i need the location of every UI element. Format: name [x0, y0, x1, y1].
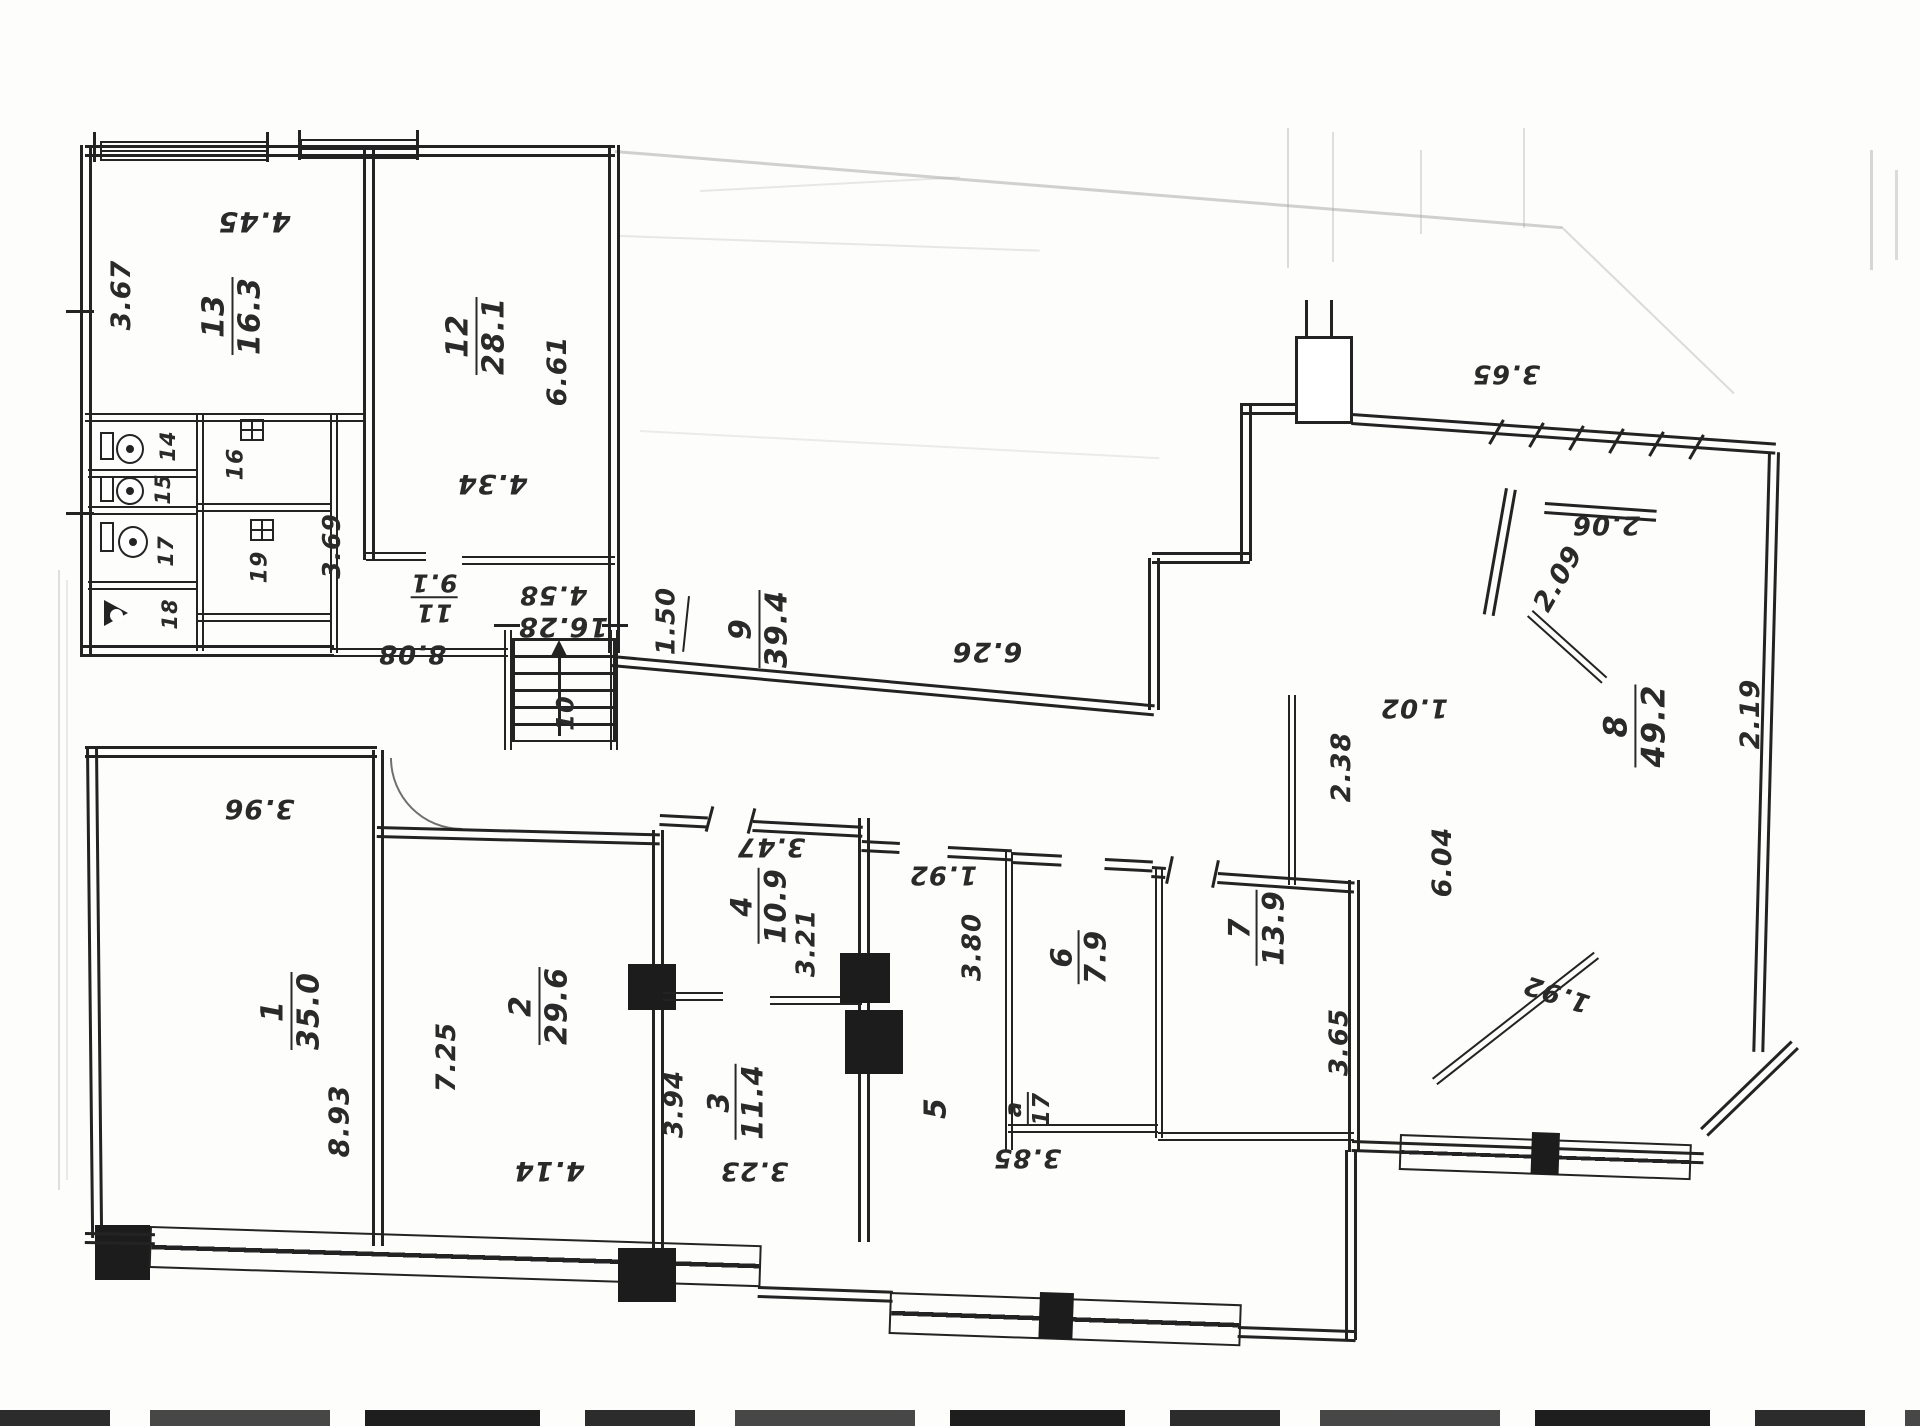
room-label-14: 14 [157, 430, 179, 461]
door-tick [1165, 856, 1174, 884]
wall-wing-right-outer [1752, 452, 1780, 1052]
room-label-7: 713.9 [1225, 890, 1290, 966]
room-label-12: 1228.1 [443, 297, 510, 375]
wall-wing-left-upper [1148, 558, 1160, 710]
scan-artifact-line [700, 176, 960, 192]
scan-artifact-line [58, 570, 60, 1190]
scan-artifact-line [1287, 128, 1289, 268]
dim-3-47: 3.47 [737, 832, 805, 859]
room-label-a-17: а17 [1002, 1092, 1054, 1126]
pillar [628, 964, 676, 1010]
wall-bottom-jog [1345, 1150, 1357, 1340]
wall-wing-top [1351, 413, 1776, 455]
dim-1-92-rooms: 1.92 [909, 860, 977, 887]
dim-16-28: 16.28 [518, 612, 608, 640]
pillar [1038, 1292, 1074, 1339]
dim-1-02: 1.02 [1380, 693, 1448, 720]
room-label-8: 849.2 [1599, 685, 1670, 768]
stairs-label-10: 10 [553, 695, 578, 730]
wall-room2-top [377, 826, 660, 845]
scan-artifact-line [640, 430, 1159, 459]
dim-3-21: 3.21 [793, 909, 820, 977]
wall-room12-bottom [462, 556, 615, 565]
dimension-tick [1330, 300, 1333, 336]
window-top-1 [100, 141, 268, 161]
wall-room4-room3 [663, 992, 723, 1001]
toilet-drain-icon [129, 538, 137, 546]
sink-icon [250, 519, 274, 541]
dim-3-23: 3.23 [720, 1156, 788, 1183]
dim-1-50: 1.50 [653, 587, 680, 655]
dimension-tick [66, 310, 94, 313]
dimension-line [682, 596, 690, 652]
dim-4-34: 4.34 [457, 469, 528, 497]
wall-room6-top [1011, 852, 1062, 867]
wall-stairwell-left [504, 630, 512, 750]
wall-entry-notch-diagonal [1527, 610, 1607, 684]
toilet-tank-icon [100, 432, 114, 460]
wall-wc16-19 [198, 503, 332, 512]
room-label-6: 67.9 [1047, 930, 1112, 984]
wall-room8-inner-diagonal [1432, 952, 1599, 1085]
wall-wc-block-top [85, 413, 366, 422]
dim-2-38: 2.38 [1328, 732, 1356, 803]
dim-6-61: 6.61 [544, 336, 572, 407]
dim-3-85: 3.85 [993, 1143, 1061, 1170]
wall-room4-top [659, 814, 708, 828]
dim-3-96: 3.96 [224, 794, 295, 822]
wall-wing-corner-diagonal [1700, 1040, 1799, 1136]
scan-artifact-line [66, 580, 68, 1180]
wall-room7-bottom [1158, 1132, 1354, 1141]
pillar [618, 1248, 676, 1302]
wall-left-outer [80, 145, 92, 655]
room-label-1: 135.0 [258, 972, 325, 1050]
wall-right-wing [608, 145, 620, 653]
dimension-tick [266, 132, 269, 162]
stairs-arrow-up-icon [551, 640, 567, 656]
room-label-16: 16 [224, 448, 247, 481]
urinal-drain-icon [110, 609, 123, 622]
wall-room8-arm-left [1288, 695, 1296, 885]
wall-bottom-outer [758, 1286, 893, 1303]
wall-wc-block-bottom [80, 645, 334, 657]
toilet-drain-icon [126, 445, 134, 453]
dim-7-25: 7.25 [433, 1022, 461, 1093]
wall-room12-bottom [366, 552, 426, 561]
dim-3-69: 3.69 [319, 513, 345, 579]
wall-shaft-link [1240, 403, 1302, 415]
wall-room6-room7 [1155, 868, 1163, 1138]
room-label-18: 18 [159, 598, 181, 629]
wall-room6-top [1104, 858, 1153, 872]
wall-room2-room3 [652, 830, 664, 1258]
floor-plan: 1316.33.674.451228.16.614.343.6914151617… [0, 0, 1920, 1426]
dimension-tick [1305, 300, 1308, 336]
dimension-tick [494, 624, 520, 627]
toilet-tank-icon [100, 476, 114, 502]
room-label-9: 939.4 [726, 590, 793, 668]
room-label-13: 1316.3 [199, 277, 266, 355]
dim-2-19: 2.19 [1737, 679, 1765, 750]
shaft-box [1295, 336, 1353, 424]
dim-4-45: 4.45 [217, 207, 290, 236]
wall-bottom-outer [85, 1232, 155, 1245]
room-label-15: 15 [152, 473, 174, 504]
room-label-5: 5 [920, 1097, 952, 1119]
wall-wing-left-riser [1240, 403, 1252, 561]
dimension-tick [416, 130, 419, 160]
wall-corridor9-top [611, 655, 1155, 716]
pillar [845, 1010, 903, 1074]
sink-icon [240, 419, 264, 441]
toilet-tank-icon [100, 522, 114, 552]
dim-6-04: 6.04 [1429, 827, 1457, 898]
wall-wc15-17 [88, 506, 198, 515]
dim-8-08: 8.08 [378, 639, 446, 666]
pillar [840, 953, 890, 1003]
dim-3-67: 3.67 [108, 260, 136, 331]
dim-2-06: 2.06 [1572, 510, 1640, 537]
dimension-tick [298, 130, 301, 160]
toilet-drain-icon [126, 487, 134, 495]
scan-artifact-line [1420, 150, 1422, 234]
scan-artifact-line [1870, 150, 1873, 270]
window-top-2 [300, 139, 418, 159]
wall-wc19-bottom [198, 613, 332, 622]
dimension-tick [93, 132, 96, 162]
wall-wing-notch-top [1152, 552, 1250, 564]
dim-3-94: 3.94 [661, 1070, 688, 1138]
wall-room13-room12 [363, 150, 375, 560]
dim-8-93: 8.93 [324, 1084, 353, 1157]
wall-bottom-outer [1238, 1326, 1356, 1342]
wall-room1-room2 [372, 750, 384, 1246]
dim-6-26: 6.26 [952, 637, 1023, 665]
scan-artifact-line [1332, 132, 1334, 262]
room-label-4: 410.9 [727, 868, 792, 944]
wall-wc17-18 [88, 581, 198, 590]
door-swing-arc [390, 758, 462, 830]
room-label-2: 229.6 [506, 967, 573, 1045]
wall-room1-top [85, 746, 377, 758]
dim-3-65-top: 3.65 [1472, 359, 1540, 386]
wall-entry-notch-side [1483, 488, 1517, 616]
scan-artifact-line [1895, 170, 1898, 260]
wall-room1-left [86, 748, 103, 1238]
scan-artifact-line [1523, 128, 1525, 228]
room-label-19: 19 [248, 551, 271, 584]
pillar [1531, 1132, 1560, 1175]
scan-smudge [0, 1410, 1920, 1426]
dim-3-80: 3.80 [959, 913, 986, 981]
dim-2-09: 2.09 [1529, 541, 1589, 616]
scan-artifact-line [1561, 226, 1735, 394]
dim-4-14: 4.14 [514, 1156, 585, 1184]
room-label-17: 17 [155, 535, 177, 566]
dim-4-58: 4.58 [519, 580, 587, 607]
scan-artifact-line [620, 235, 1040, 252]
room-label-3: 311.4 [704, 1064, 769, 1140]
room-label-11: 119.1 [410, 569, 457, 626]
dim-3-65-room7: 3.65 [1326, 1008, 1353, 1076]
